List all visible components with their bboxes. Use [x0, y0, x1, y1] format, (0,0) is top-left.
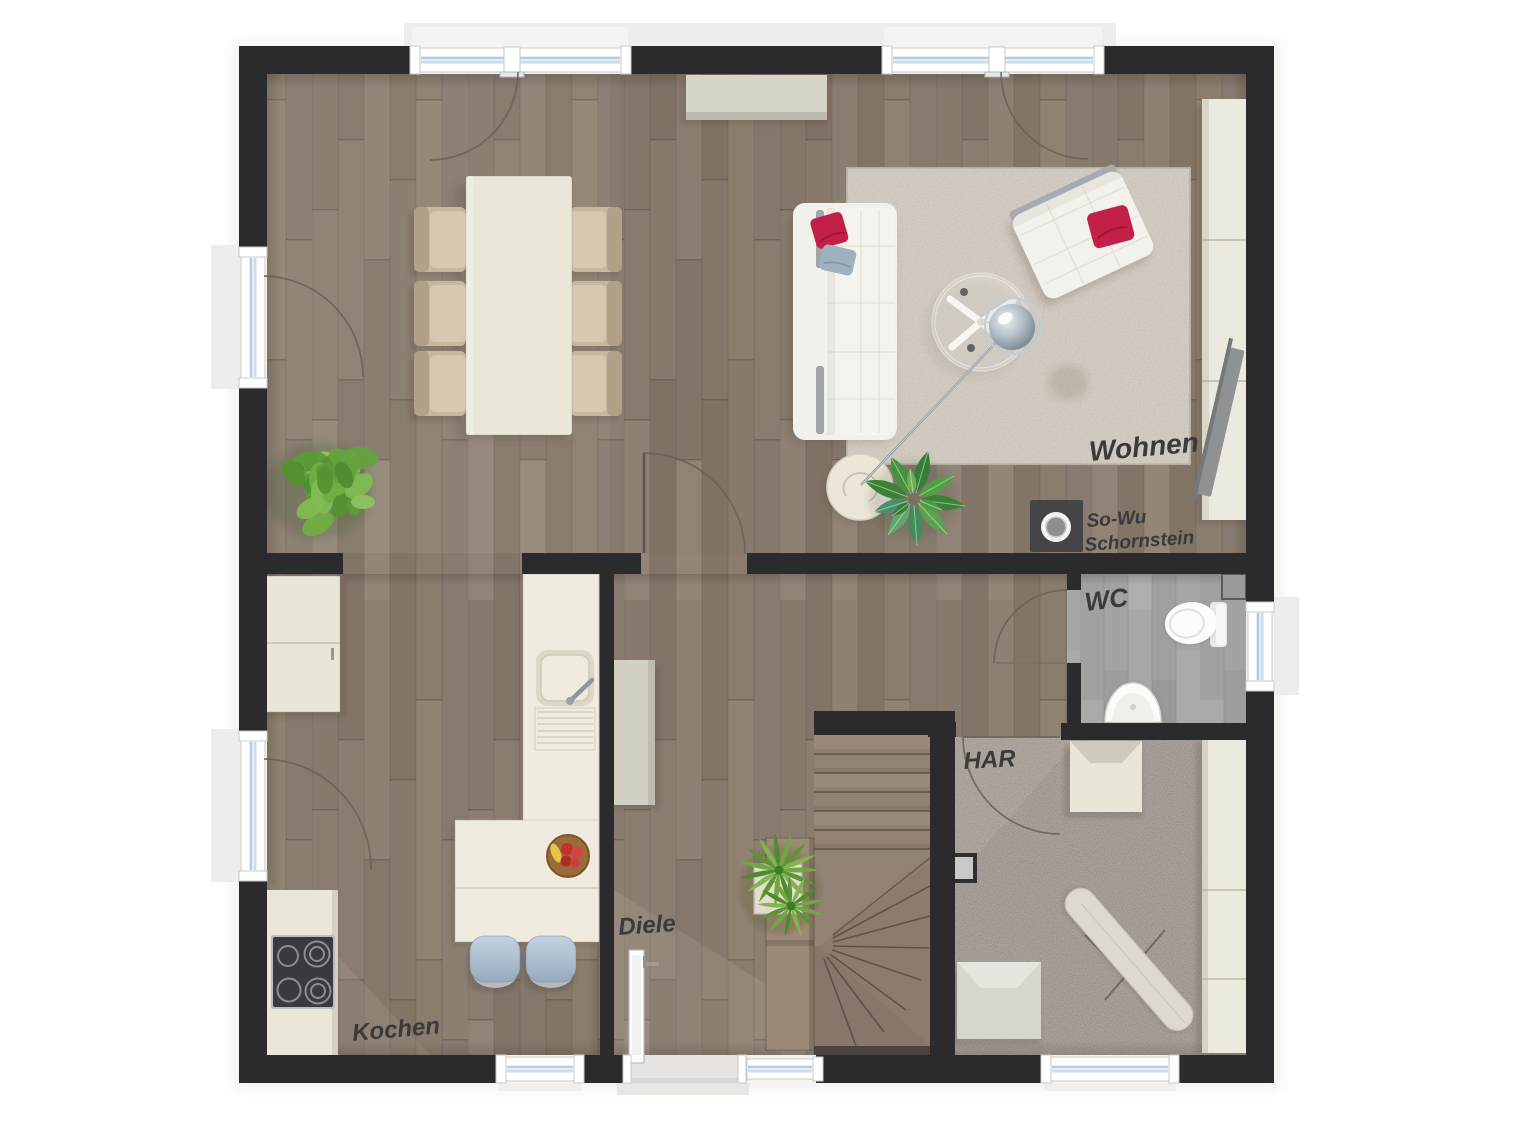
svg-text:WC: WC [1083, 582, 1131, 617]
svg-text:HAR: HAR [963, 745, 1017, 775]
svg-text:Diele: Diele [617, 910, 676, 941]
svg-text:So-Wu: So-Wu [1086, 507, 1148, 532]
